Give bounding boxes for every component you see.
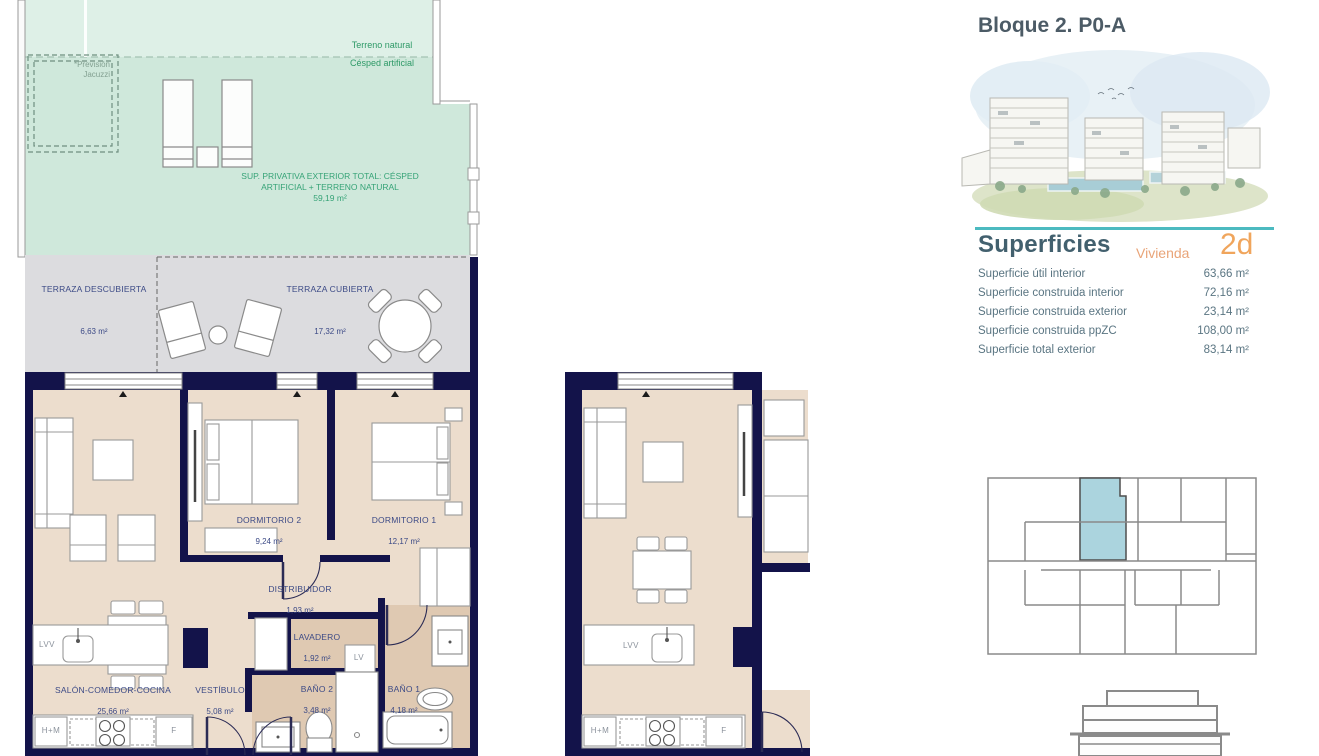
- row-value: 83,14 m²: [1204, 344, 1249, 363]
- hm-label-main: H+M: [42, 726, 61, 736]
- elevation-diagram: [1070, 691, 1230, 756]
- terraza-descubierta-label: TERRAZA DESCUBIERTA 6,63 m²: [41, 278, 146, 340]
- key-plan: [988, 478, 1256, 654]
- hm-label-middle: H+M: [591, 726, 610, 736]
- table-row: Superficie total exterior 83,14 m²: [978, 344, 1249, 363]
- vestibulo-label: VESTÍBULO 5,08 m²: [195, 679, 245, 721]
- block-title: Bloque 2. P0-A: [978, 14, 1126, 38]
- salon-label: SALÓN-COMEDOR-COCINA 25,66 m²: [55, 679, 171, 721]
- table-row: Superficie construida exterior 23,14 m²: [978, 306, 1249, 325]
- lv-label: LV: [354, 653, 364, 663]
- f-label-middle: F: [721, 726, 726, 736]
- bano1-label: BAÑO 1 4,18 m²: [388, 678, 420, 720]
- lvv-label-middle: LVV: [623, 641, 639, 651]
- terraza-cubierta-label: TERRAZA CUBIERTA 17,32 m²: [287, 278, 374, 340]
- floor-plan-svg: [0, 0, 1319, 756]
- superficies-heading: Superficies: [978, 231, 1111, 259]
- row-label: Superficie construida exterior: [978, 306, 1127, 325]
- row-label: Superficie útil interior: [978, 268, 1085, 287]
- middle-plan: [565, 372, 810, 756]
- lvv-label-main: LVV: [39, 640, 55, 650]
- f-label-main: F: [171, 726, 176, 736]
- dormitorio1-label: DORMITORIO 1 12,17 m²: [372, 509, 437, 551]
- dormitorio2-label: DORMITORIO 2 9,24 m²: [237, 509, 302, 551]
- bano2-label: BAÑO 2 3,48 m²: [301, 678, 333, 720]
- row-value: 23,14 m²: [1204, 306, 1249, 325]
- distribuidor-label: DISTRIBUIDOR 1,93 m²: [268, 578, 331, 620]
- table-row: Superficie construida interior 72,16 m²: [978, 287, 1249, 306]
- surface-table: Superficie útil interior 63,66 m² Superf…: [978, 268, 1249, 363]
- building-rendering: [962, 50, 1270, 222]
- lavadero-label: LAVADERO 1,92 m²: [294, 626, 341, 668]
- cesped-artificial-label: Césped artificial: [350, 58, 414, 70]
- table-row: Superficie útil interior 63,66 m²: [978, 268, 1249, 287]
- jacuzzi-provision-label: *Previsión Jacuzzi: [40, 60, 110, 81]
- table-row: Superficie construida ppZC 108,00 m²: [978, 325, 1249, 344]
- row-label: Superficie construida ppZC: [978, 325, 1117, 344]
- row-label: Superficie construida interior: [978, 287, 1124, 306]
- row-value: 108,00 m²: [1197, 325, 1249, 344]
- unit-code: 2d: [1220, 228, 1253, 262]
- row-label: Superficie total exterior: [978, 344, 1096, 363]
- sup-privativa-label: SUP. PRIVATIVA EXTERIOR TOTAL: CÉSPED AR…: [241, 171, 418, 204]
- row-value: 63,66 m²: [1204, 268, 1249, 287]
- plan-sheet: Terreno natural Césped artificial *Previ…: [0, 0, 1319, 756]
- row-value: 72,16 m²: [1204, 287, 1249, 306]
- terreno-natural-label: Terreno natural: [352, 40, 413, 52]
- garden-area: [18, 0, 479, 257]
- vivienda-label: Vivienda: [1136, 245, 1189, 261]
